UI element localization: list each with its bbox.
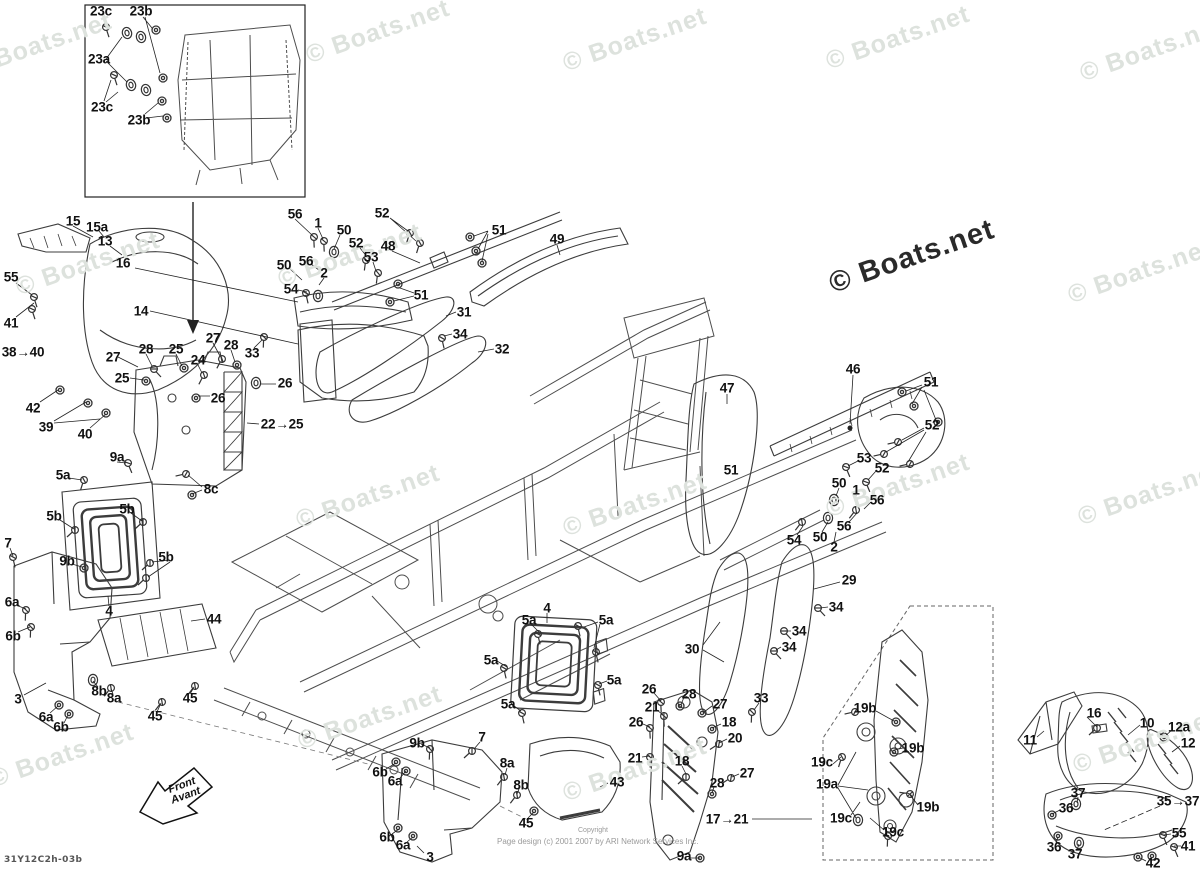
callout-31: 31 <box>457 305 472 320</box>
callout-35-to-37: 35→37 <box>1157 794 1200 809</box>
callout-6b: 6b <box>53 720 68 735</box>
callout-54: 54 <box>787 533 802 548</box>
callout-23c: 23c <box>90 4 112 19</box>
callout-18: 18 <box>675 754 690 769</box>
leader-lines <box>10 218 1181 861</box>
callout-41: 41 <box>4 316 19 331</box>
callout-32: 32 <box>495 342 510 357</box>
callout-5a: 5a <box>607 673 622 688</box>
callout-5a: 5a <box>522 613 537 628</box>
callout-23b: 23b <box>130 4 153 19</box>
callout-51: 51 <box>924 375 939 390</box>
callout-53: 53 <box>857 451 872 466</box>
callout-18: 18 <box>722 715 737 730</box>
callout-7: 7 <box>4 536 11 551</box>
callout-45: 45 <box>519 816 534 831</box>
callout-33: 33 <box>754 691 769 706</box>
callout-50: 50 <box>813 530 828 545</box>
callout-9a: 9a <box>110 450 125 465</box>
callout-11: 11 <box>1023 733 1037 748</box>
callout-50: 50 <box>277 258 292 273</box>
callout-5b: 5b <box>46 509 61 524</box>
callout-42: 42 <box>26 401 41 416</box>
callout-52: 52 <box>925 418 940 433</box>
callout-29: 29 <box>842 573 857 588</box>
callout-8b: 8b <box>91 684 106 699</box>
callout-15: 15 <box>66 214 81 229</box>
callout-24: 24 <box>191 353 206 368</box>
callout-45: 45 <box>148 709 163 724</box>
callout-36: 36 <box>1059 801 1074 816</box>
callout-19c: 19c <box>830 811 852 826</box>
callout-6b: 6b <box>379 830 394 845</box>
callout-28: 28 <box>682 687 697 702</box>
callout-21: 21 <box>628 751 643 766</box>
callout-6a: 6a <box>388 774 403 789</box>
callout-6a: 6a <box>5 595 20 610</box>
callout-19c: 19c <box>882 825 904 840</box>
callout-23c: 23c <box>91 100 113 115</box>
fastener-icons <box>6 228 1182 862</box>
callout-9b: 9b <box>59 554 74 569</box>
callout-28: 28 <box>139 342 154 357</box>
callout-8b: 8b <box>513 778 528 793</box>
callout-53: 53 <box>364 250 379 265</box>
callout-38-to-40: 38→40 <box>2 345 45 360</box>
copyright-line-text: Page design (c) 2001 2007 by ARI Network… <box>497 837 698 846</box>
callout-49: 49 <box>550 232 565 247</box>
callout-20: 20 <box>728 731 743 746</box>
inset-frame-sketch <box>178 25 300 185</box>
callout-26: 26 <box>278 376 293 391</box>
callout-1: 1 <box>314 216 321 231</box>
callout-9b: 9b <box>409 736 424 751</box>
callout-43: 43 <box>610 775 625 790</box>
callout-12: 12 <box>1181 736 1196 751</box>
callout-15a: 15a <box>86 220 108 235</box>
callout-52: 52 <box>349 236 364 251</box>
callout-19b: 19b <box>917 800 940 815</box>
callout-52: 52 <box>375 206 390 221</box>
callout-41: 41 <box>1181 839 1196 854</box>
callout-26: 26 <box>629 715 644 730</box>
callout-13: 13 <box>98 234 113 249</box>
callout-45: 45 <box>183 691 198 706</box>
callout-28: 28 <box>710 776 725 791</box>
callout-47: 47 <box>720 381 735 396</box>
callout-28: 28 <box>224 338 239 353</box>
diagram-line-art <box>0 0 1200 871</box>
callout-5a: 5a <box>599 613 614 628</box>
callout-34: 34 <box>782 640 797 655</box>
callout-48: 48 <box>381 239 396 254</box>
callout-54: 54 <box>284 282 299 297</box>
callout-51: 51 <box>724 463 739 478</box>
callout-51: 51 <box>414 288 429 303</box>
callout-26: 26 <box>642 682 657 697</box>
callout-37: 37 <box>1068 847 1083 862</box>
callout-16: 16 <box>116 256 131 271</box>
callout-34: 34 <box>453 327 468 342</box>
callout-19c: 19c <box>811 755 833 770</box>
callout-34: 34 <box>792 624 807 639</box>
callout-25: 25 <box>169 342 184 357</box>
callout-27: 27 <box>740 766 755 781</box>
callout-8a: 8a <box>500 756 515 771</box>
callout-2: 2 <box>320 266 327 281</box>
callout-46: 46 <box>846 362 861 377</box>
callout-55: 55 <box>4 270 19 285</box>
callout-44: 44 <box>207 612 222 627</box>
callout-5b: 5b <box>158 550 173 565</box>
callout-25: 25 <box>115 371 130 386</box>
callout-27: 27 <box>106 350 121 365</box>
callout-14: 14 <box>134 304 149 319</box>
callout-56: 56 <box>837 519 852 534</box>
callout-2: 2 <box>830 540 837 555</box>
callout-9a: 9a <box>677 849 692 864</box>
callout-56: 56 <box>299 254 314 269</box>
callout-6b: 6b <box>5 629 20 644</box>
callout-10: 10 <box>1140 716 1155 731</box>
callout-8a: 8a <box>107 691 122 706</box>
callout-50: 50 <box>832 476 847 491</box>
callout-19b: 19b <box>902 741 925 756</box>
callout-5a: 5a <box>501 697 516 712</box>
copyright-small-text: Copyright <box>578 827 608 834</box>
callout-6a: 6a <box>39 710 54 725</box>
callout-52: 52 <box>875 461 890 476</box>
callout-17-to-21: 17→21 <box>706 812 749 827</box>
callout-51: 51 <box>492 223 507 238</box>
callout-4: 4 <box>543 601 550 616</box>
callout-7: 7 <box>478 730 485 745</box>
callout-3: 3 <box>426 850 433 865</box>
callout-23a: 23a <box>88 52 110 67</box>
callout-27: 27 <box>713 697 728 712</box>
callout-36: 36 <box>1047 840 1062 855</box>
callout-23b: 23b <box>128 113 151 128</box>
callout-5a: 5a <box>484 653 499 668</box>
callout-1: 1 <box>852 483 859 498</box>
callout-3: 3 <box>14 692 21 707</box>
callout-6a: 6a <box>396 838 411 853</box>
callout-19b: 19b <box>854 701 877 716</box>
callout-56: 56 <box>870 493 885 508</box>
callout-39: 39 <box>39 420 54 435</box>
callout-5a: 5a <box>56 468 71 483</box>
callout-6b: 6b <box>372 765 387 780</box>
drawing-code: 31Y12C2h-03b <box>4 855 82 865</box>
callout-8c: 8c <box>204 482 219 497</box>
callout-4: 4 <box>105 604 112 619</box>
callout-56: 56 <box>288 207 303 222</box>
callout-12a: 12a <box>1168 720 1190 735</box>
callout-16: 16 <box>1087 706 1102 721</box>
callout-30: 30 <box>685 642 700 657</box>
callout-21: 21 <box>645 700 660 715</box>
callout-26: 26 <box>211 391 226 406</box>
callout-5b: 5b <box>119 502 134 517</box>
callout-33: 33 <box>245 346 260 361</box>
callout-27: 27 <box>206 331 221 346</box>
callout-40: 40 <box>78 427 93 442</box>
callout-19a: 19a <box>816 777 838 792</box>
callout-22-to-25: 22→25 <box>261 417 304 432</box>
inset-pointer-arrow <box>187 202 199 334</box>
callout-42: 42 <box>1146 856 1161 871</box>
callout-34: 34 <box>829 600 844 615</box>
callout-37: 37 <box>1071 786 1086 801</box>
parts-diagram-canvas: © Boats.net © Boats.net© Boats.net© Boat… <box>0 0 1200 871</box>
